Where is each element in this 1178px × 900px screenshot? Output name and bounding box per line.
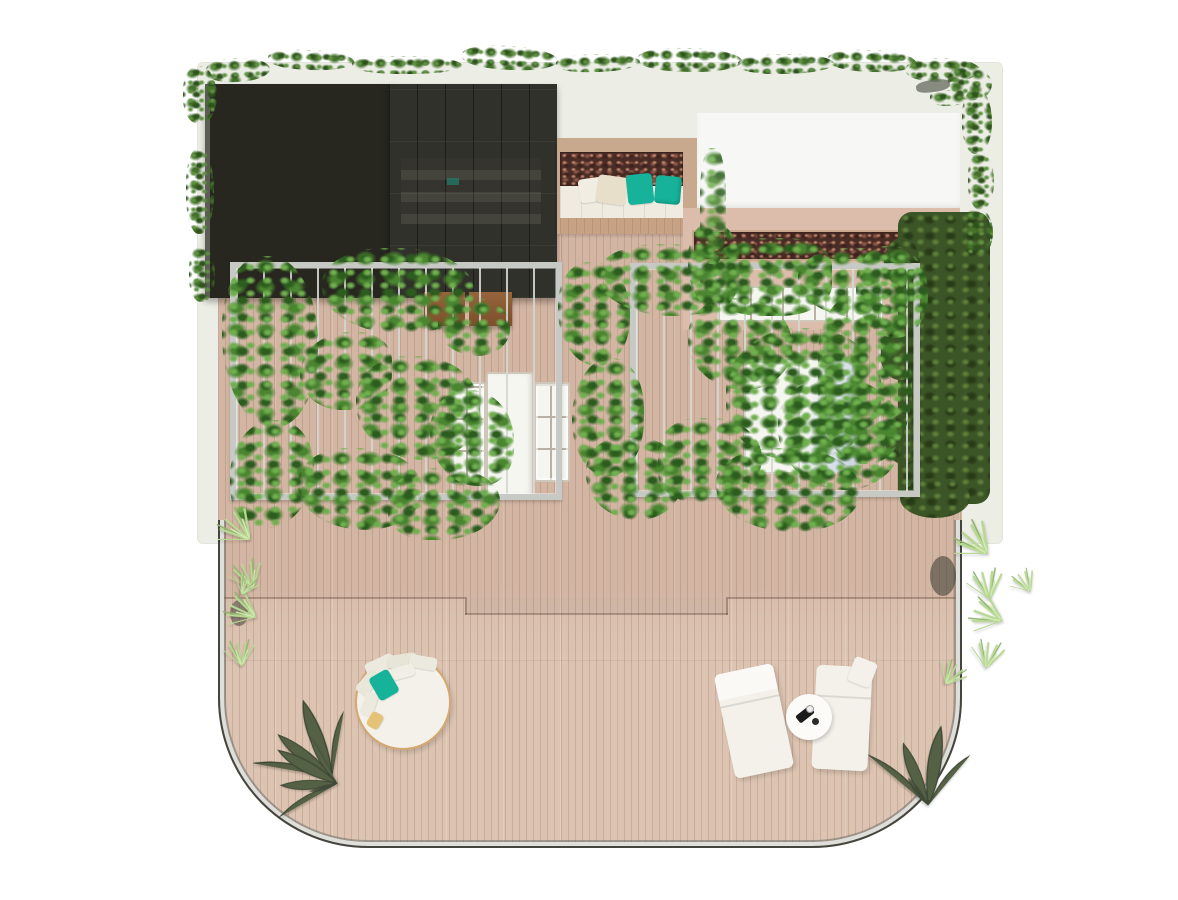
through-glass-teal-decor: [447, 178, 459, 185]
ivy-edge: [930, 90, 966, 106]
round-daybed: [355, 654, 451, 750]
ivy-edge-left: [186, 148, 214, 234]
yucca-plant: [936, 620, 1001, 685]
white-roof: [697, 112, 960, 210]
through-glass-shelf-glow: [401, 158, 541, 224]
terrace-plan-rendering: [0, 0, 1178, 900]
ivy-trail-right: [963, 208, 993, 256]
ivy-trail-right: [962, 88, 992, 154]
table-cup: [812, 718, 819, 725]
ivy-edge: [352, 56, 462, 74]
vine-strand: [700, 148, 726, 264]
ivy-edge-left: [183, 66, 217, 124]
ivy-edge-left: [189, 246, 215, 302]
pillow-beige: [595, 174, 629, 206]
outdoor-sofa-nook: [557, 138, 697, 234]
ivy-trail-right: [968, 152, 994, 210]
deck-step-recess: [465, 598, 728, 614]
nook-floor-strip: [560, 218, 683, 234]
pillow-teal: [654, 175, 682, 205]
pillow-teal: [626, 173, 655, 206]
